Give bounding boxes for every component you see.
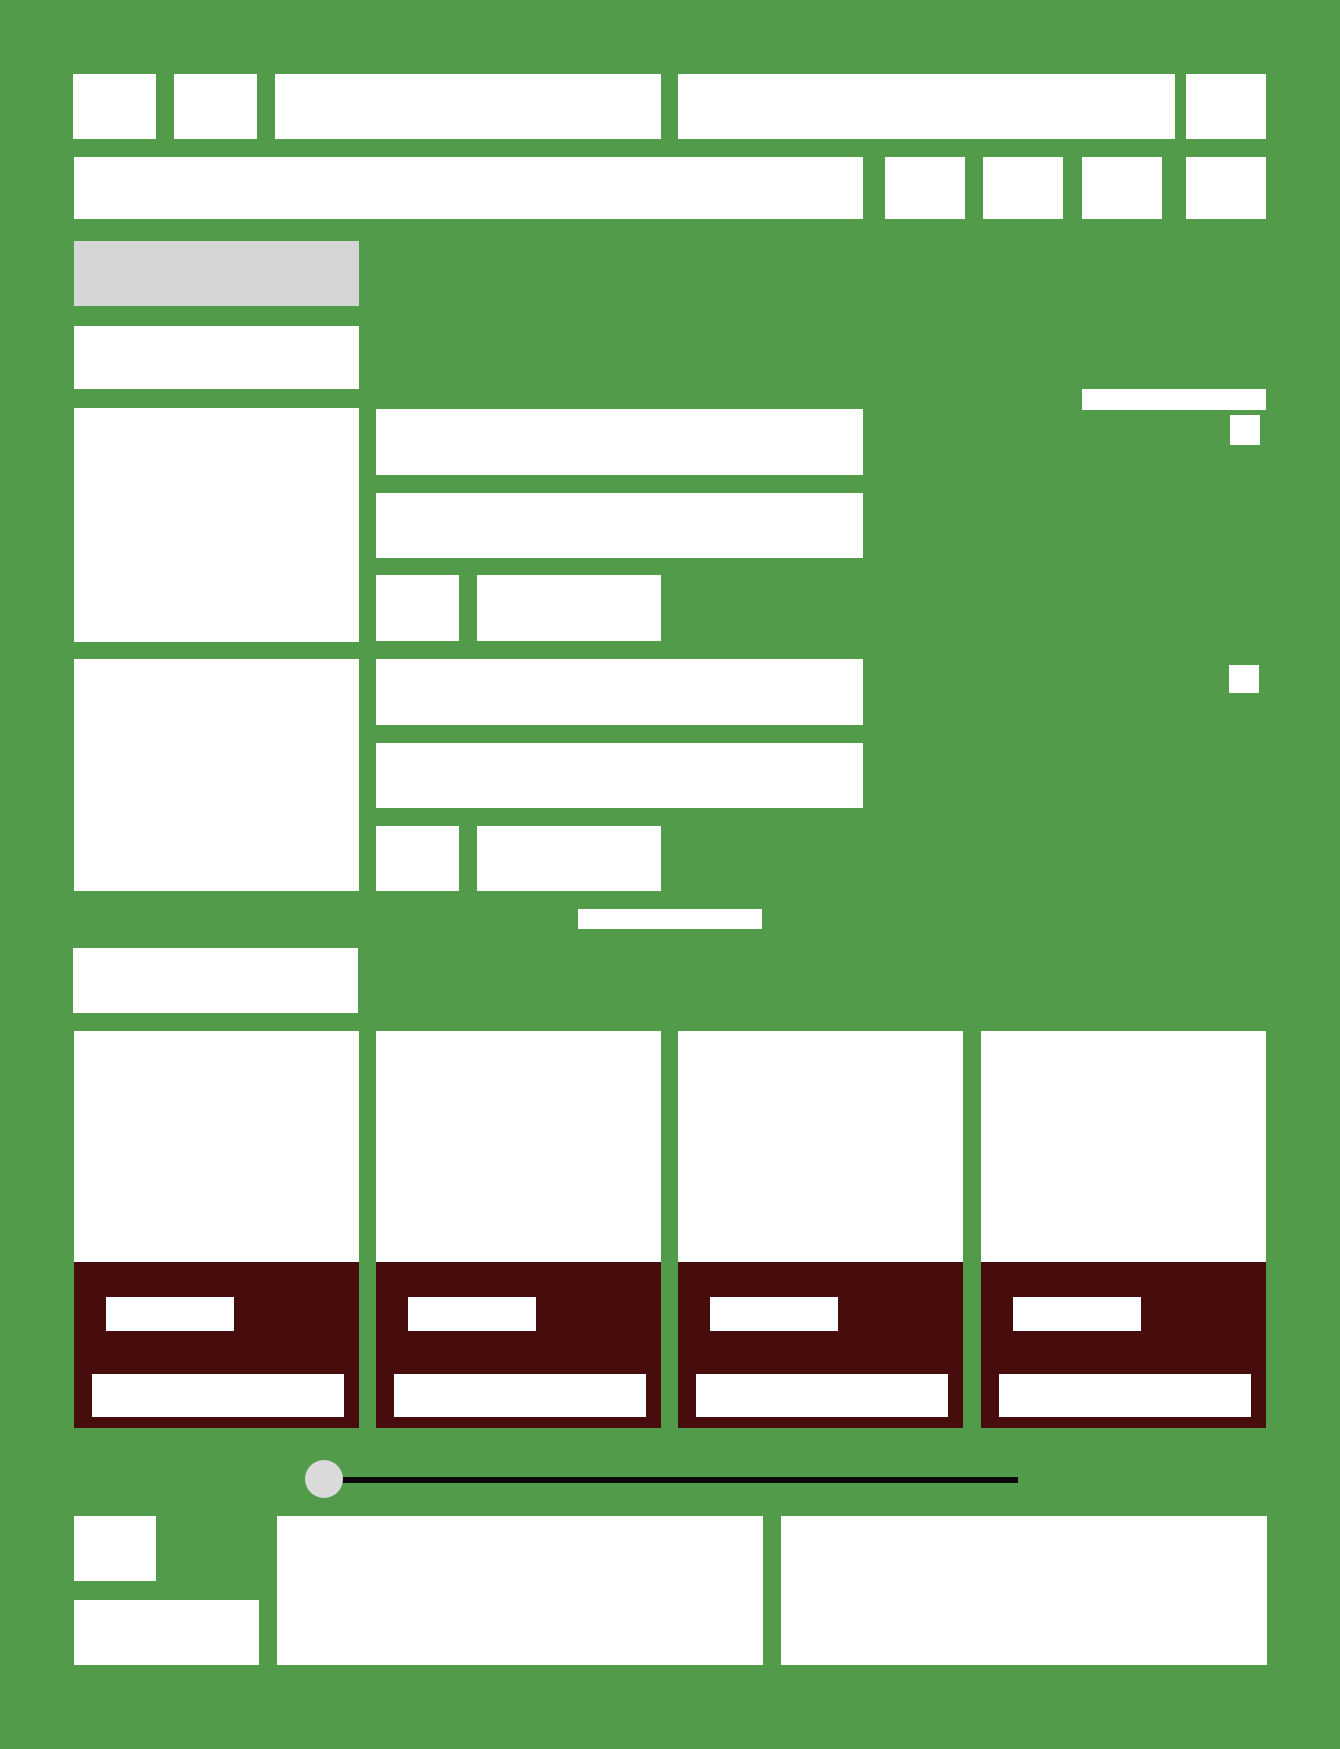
card-4-price-button[interactable] — [1013, 1297, 1141, 1331]
toolbar-button-1[interactable] — [73, 74, 156, 139]
filter-button-1[interactable] — [885, 157, 965, 219]
fieldset-a-input-small[interactable] — [376, 575, 459, 641]
card-3-price-button[interactable] — [710, 1297, 838, 1331]
side-accent-bar — [1082, 389, 1266, 410]
filter-button-4[interactable] — [1186, 157, 1266, 219]
fieldset-a-input-2[interactable] — [376, 493, 863, 558]
toolbar-button-2[interactable] — [174, 74, 257, 139]
fieldset-b-label-panel — [74, 659, 359, 891]
footer-label — [74, 1600, 259, 1665]
filter-button-2[interactable] — [983, 157, 1063, 219]
fieldset-b-input-small[interactable] — [376, 826, 459, 891]
footer-panel-left — [277, 1516, 763, 1665]
footer-panel-right — [781, 1516, 1267, 1665]
toolbar-field-left[interactable] — [275, 74, 661, 139]
card-1-image[interactable] — [74, 1031, 359, 1262]
card-2-price-button[interactable] — [408, 1297, 536, 1331]
fieldset-b-input-2[interactable] — [376, 743, 863, 808]
card-2-title-bar[interactable] — [394, 1374, 646, 1417]
fieldset-b-input-1[interactable] — [376, 659, 863, 725]
search-input[interactable] — [74, 157, 863, 219]
card-3-image[interactable] — [678, 1031, 963, 1262]
center-divider-bar — [578, 909, 762, 929]
toolbar-button-3[interactable] — [1186, 74, 1266, 139]
filter-button-3[interactable] — [1082, 157, 1162, 219]
card-1-price-button[interactable] — [106, 1297, 234, 1331]
app-canvas — [0, 0, 1340, 1749]
card-1-title-bar[interactable] — [92, 1374, 344, 1417]
fieldset-a-input-1[interactable] — [376, 409, 863, 475]
card-3-title-bar[interactable] — [696, 1374, 948, 1417]
fieldset-a-label-panel — [74, 408, 359, 642]
card-4-title-bar[interactable] — [999, 1374, 1251, 1417]
slider-knob[interactable] — [305, 1460, 343, 1498]
card-4-image[interactable] — [981, 1031, 1266, 1262]
side-checkbox-2[interactable] — [1229, 665, 1259, 693]
footer-checkbox[interactable] — [74, 1516, 156, 1581]
slider-track[interactable] — [324, 1477, 1018, 1483]
card-2-image[interactable] — [376, 1031, 661, 1262]
fieldset-b-input-medium[interactable] — [477, 826, 661, 891]
section-title-muted — [74, 241, 359, 306]
fieldset-a-input-medium[interactable] — [477, 575, 661, 641]
side-checkbox-1[interactable] — [1230, 415, 1260, 445]
grid-section-label — [73, 948, 358, 1013]
toolbar-field-right[interactable] — [678, 74, 1175, 139]
form-section-label — [74, 326, 359, 389]
